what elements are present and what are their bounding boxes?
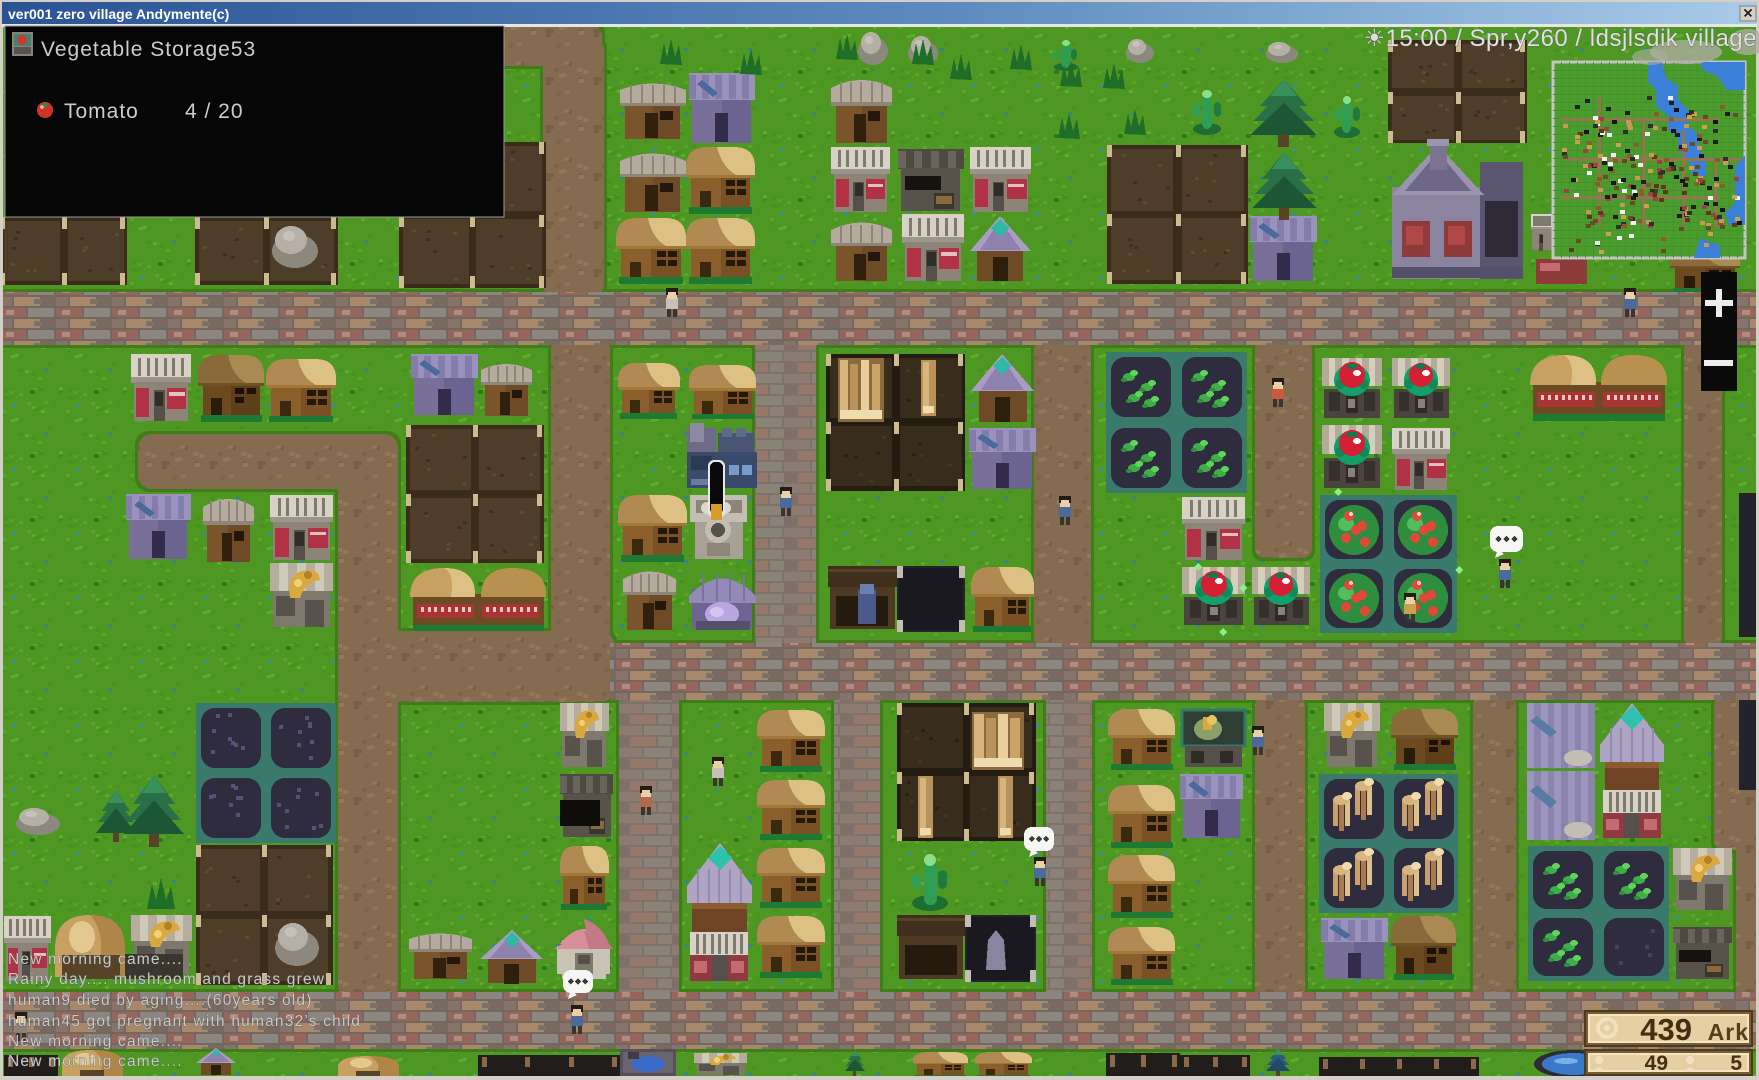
svg-text:New morning came....: New morning came.... bbox=[8, 1053, 183, 1070]
svg-text:Ark: Ark bbox=[1708, 1019, 1749, 1045]
svg-text:☀15:00 / Spr,y260 / ldsjlsdik: ☀15:00 / Spr,y260 / ldsjlsdik village bbox=[1363, 25, 1757, 52]
svg-text:New morning came....: New morning came.... bbox=[8, 1033, 183, 1050]
svg-text:Tomato: Tomato bbox=[64, 100, 139, 123]
svg-text:49: 49 bbox=[1645, 1052, 1668, 1075]
svg-text:4 / 20: 4 / 20 bbox=[185, 100, 244, 123]
svg-text:ver001 zero village Andymente(: ver001 zero village Andymente(c) bbox=[8, 6, 229, 22]
svg-text:5: 5 bbox=[1730, 1052, 1742, 1075]
svg-text:human45 got pregnant with huma: human45 got pregnant with human32’s chil… bbox=[8, 1013, 361, 1030]
svg-text:Vegetable Storage53: Vegetable Storage53 bbox=[41, 38, 256, 61]
svg-text:439: 439 bbox=[1640, 1012, 1692, 1047]
svg-text:Rainy day.... mushroom and gra: Rainy day.... mushroom and grass grew bbox=[8, 971, 325, 988]
svg-text:human9 died by aging....(60yea: human9 died by aging....(60years old) bbox=[8, 992, 313, 1009]
svg-text:New morning came....: New morning came.... bbox=[8, 951, 183, 968]
